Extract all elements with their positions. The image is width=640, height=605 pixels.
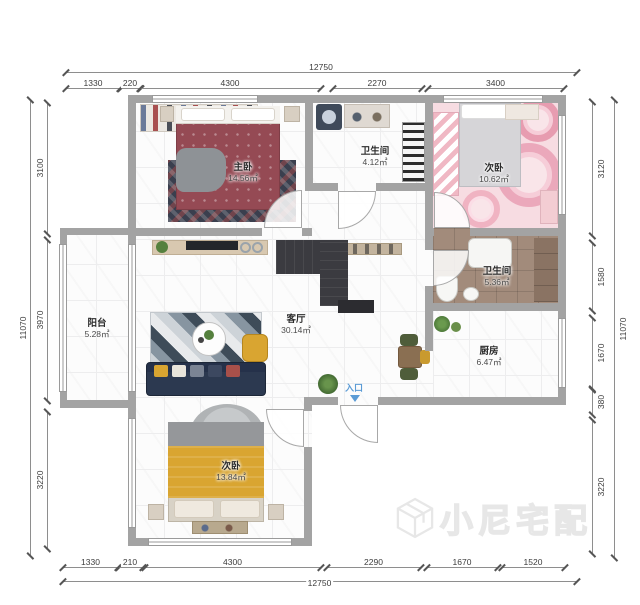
plant bbox=[204, 330, 214, 340]
wall bbox=[425, 303, 566, 311]
door-arc-entrance bbox=[340, 405, 378, 443]
dim-bottom-seg: 1330 bbox=[63, 567, 118, 568]
window bbox=[128, 418, 136, 528]
dim-bottom-seg: 2290 bbox=[327, 567, 420, 568]
dim-bottom-seg: 210 bbox=[118, 567, 142, 568]
wall bbox=[304, 397, 338, 405]
wall bbox=[425, 95, 433, 236]
dim-top-seg: 1330 bbox=[66, 88, 120, 89]
tv bbox=[186, 241, 238, 250]
wall bbox=[128, 236, 136, 244]
wall bbox=[128, 400, 136, 418]
stool bbox=[420, 350, 430, 364]
dim-right-total: 11070 bbox=[614, 100, 615, 557]
plant bbox=[451, 322, 461, 332]
dim-top-total: 12750 bbox=[66, 72, 576, 73]
entrance-label: 入口 bbox=[345, 381, 363, 394]
dim-bottom-total: 12750 bbox=[63, 581, 576, 582]
nightstand bbox=[148, 504, 164, 520]
wall bbox=[305, 183, 338, 191]
sofa-pillow bbox=[154, 365, 168, 377]
cube-logo-icon bbox=[396, 496, 434, 540]
floor-kitchen bbox=[433, 303, 566, 405]
wall bbox=[128, 103, 136, 236]
nightstand bbox=[284, 106, 300, 122]
dim-left-total: 11070 bbox=[30, 100, 31, 555]
sofa-pillow bbox=[172, 365, 186, 377]
dim-left-seg: 3970 bbox=[47, 240, 48, 400]
window bbox=[128, 244, 136, 392]
wall bbox=[60, 228, 67, 244]
dim-top-seg: 3400 bbox=[428, 88, 563, 89]
armchair bbox=[242, 334, 268, 362]
bicycle-wheel bbox=[240, 242, 251, 253]
wall bbox=[376, 183, 430, 191]
pillow bbox=[174, 500, 214, 518]
chair bbox=[400, 368, 418, 380]
bathtub bbox=[468, 238, 512, 268]
watermark-text: 小尼宅配 bbox=[440, 494, 592, 542]
wall bbox=[304, 405, 312, 411]
wall bbox=[304, 447, 312, 546]
nightstand bbox=[160, 106, 174, 122]
wardrobe bbox=[433, 112, 459, 196]
dining-table bbox=[398, 346, 422, 368]
dim-right-seg: 3220 bbox=[592, 420, 593, 553]
dim-left-seg: 3100 bbox=[47, 103, 48, 233]
wall bbox=[128, 538, 148, 546]
wall bbox=[470, 228, 566, 236]
window bbox=[443, 95, 543, 103]
decor-bowl bbox=[198, 337, 204, 343]
wall bbox=[305, 95, 313, 191]
wall bbox=[128, 392, 136, 400]
blanket-yellow bbox=[168, 446, 264, 498]
window bbox=[558, 115, 566, 215]
dim-right-seg: 1580 bbox=[592, 243, 593, 310]
pillow bbox=[181, 108, 225, 121]
dim-top-seg: 4300 bbox=[140, 88, 320, 89]
washing-machine-door bbox=[322, 110, 336, 124]
plant bbox=[434, 316, 450, 332]
vanity-counter bbox=[344, 104, 390, 128]
dim-bottom-seg: 4300 bbox=[145, 567, 320, 568]
cabinet-base bbox=[338, 300, 374, 313]
dresser bbox=[540, 190, 558, 224]
plant bbox=[318, 374, 338, 394]
wall bbox=[378, 397, 566, 405]
dim-right-seg: 3120 bbox=[592, 102, 593, 235]
sofa-pillow bbox=[190, 365, 204, 377]
blanket-throw bbox=[176, 148, 226, 192]
bench bbox=[192, 521, 248, 534]
dim-right-seg: 1670 bbox=[592, 318, 593, 388]
watermark: 小尼宅配 bbox=[396, 494, 592, 542]
wall bbox=[425, 236, 433, 250]
sofa-pillow bbox=[226, 365, 240, 377]
pillow bbox=[231, 108, 275, 121]
dim-top-seg: 2270 bbox=[333, 88, 421, 89]
wall bbox=[425, 228, 434, 236]
wall bbox=[60, 228, 128, 235]
dim-right-seg: 380 bbox=[592, 390, 593, 414]
bicycle-wheel bbox=[252, 242, 263, 253]
window bbox=[148, 538, 292, 546]
nightstand bbox=[268, 504, 284, 520]
floor-plan-canvas: 主卧 14.56㎡ 卫生间 4.12㎡ 次卧 10.62㎡ 客厅 30.14㎡ … bbox=[0, 0, 640, 605]
sofa-pillow bbox=[208, 365, 222, 377]
window bbox=[59, 244, 67, 392]
dim-left-seg: 3220 bbox=[47, 412, 48, 548]
desk bbox=[505, 104, 539, 120]
wall bbox=[128, 228, 262, 236]
chair bbox=[400, 334, 418, 346]
window bbox=[152, 95, 258, 103]
blanket-gray bbox=[168, 422, 264, 446]
floor-balcony bbox=[60, 228, 136, 408]
dim-bottom-seg: 1520 bbox=[502, 567, 564, 568]
sink bbox=[463, 287, 479, 301]
dim-bottom-seg: 1670 bbox=[427, 567, 497, 568]
entrance-arrow-icon bbox=[350, 395, 360, 402]
cabinet-l-shape bbox=[320, 240, 348, 306]
window bbox=[558, 318, 566, 388]
pillow bbox=[220, 500, 260, 518]
wall bbox=[302, 228, 312, 236]
bathroom-cabinet bbox=[534, 238, 558, 302]
wall bbox=[60, 400, 128, 408]
plant bbox=[156, 241, 168, 253]
wall bbox=[425, 311, 433, 351]
towel-shelf bbox=[402, 122, 425, 182]
